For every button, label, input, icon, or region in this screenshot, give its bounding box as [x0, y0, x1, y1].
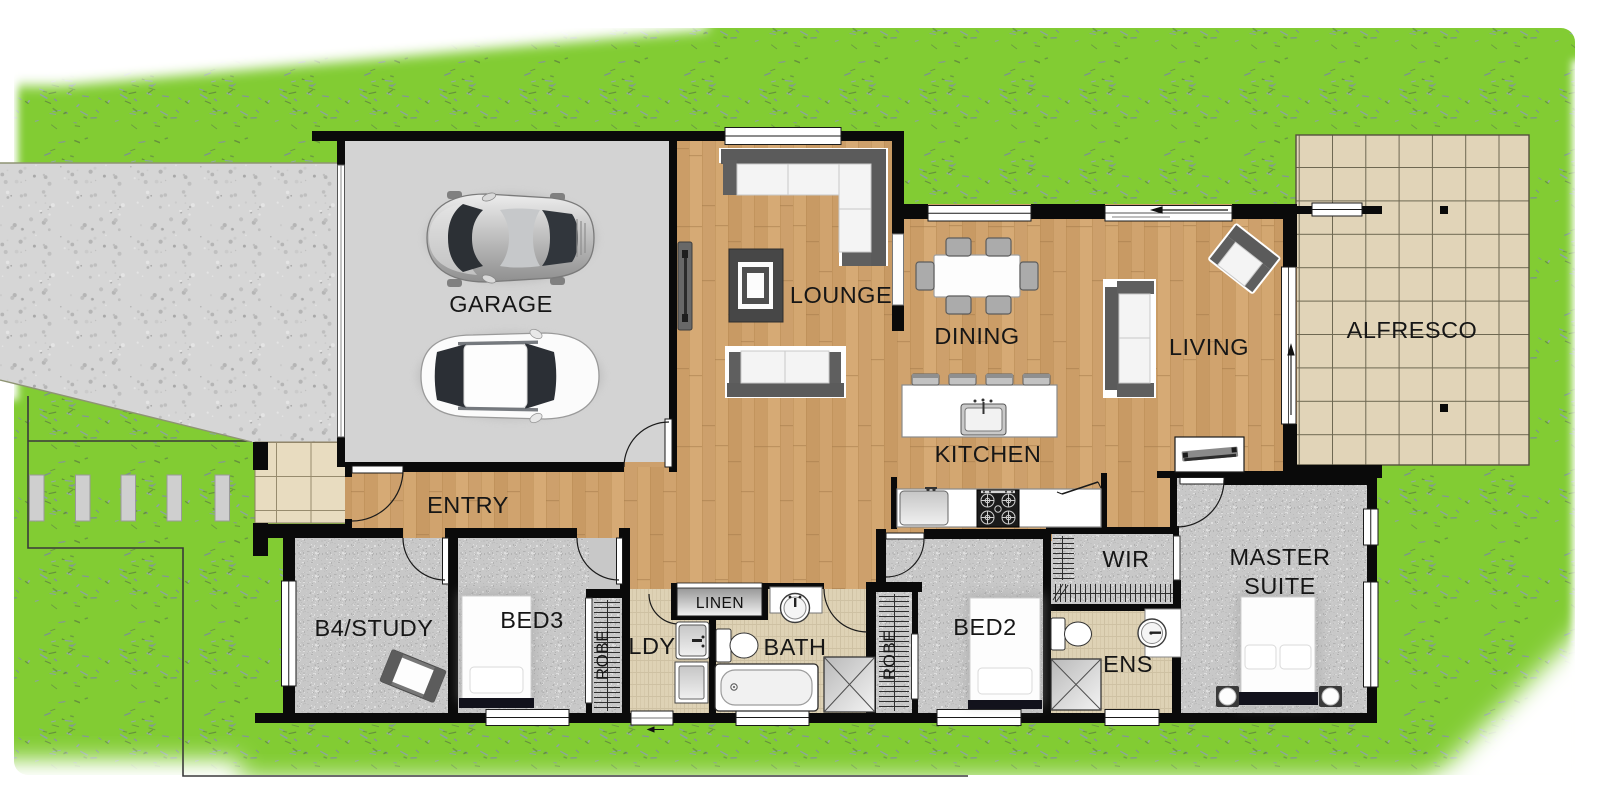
svg-text:BED2: BED2 [953, 614, 1016, 640]
svg-text:LINEN: LINEN [696, 595, 744, 612]
svg-text:WIR: WIR [1102, 546, 1149, 572]
svg-text:B4/STUDY: B4/STUDY [315, 615, 434, 641]
svg-text:MASTER: MASTER [1230, 544, 1331, 570]
svg-text:KITCHEN: KITCHEN [935, 441, 1042, 467]
svg-text:ENS: ENS [1103, 651, 1153, 677]
svg-text:LDY: LDY [628, 633, 675, 659]
svg-text:GARAGE: GARAGE [449, 291, 553, 317]
svg-text:SUITE: SUITE [1244, 573, 1316, 599]
svg-text:BED3: BED3 [500, 607, 563, 633]
svg-text:ALFRESCO: ALFRESCO [1347, 317, 1478, 343]
svg-text:BATH: BATH [764, 634, 827, 660]
svg-text:LIVING: LIVING [1169, 334, 1249, 360]
svg-text:ENTRY: ENTRY [427, 492, 509, 518]
svg-text:LOUNGE: LOUNGE [790, 282, 892, 308]
svg-text:DINING: DINING [934, 323, 1019, 349]
svg-text:ROBE: ROBE [593, 630, 612, 680]
svg-text:ROBE: ROBE [880, 630, 899, 680]
